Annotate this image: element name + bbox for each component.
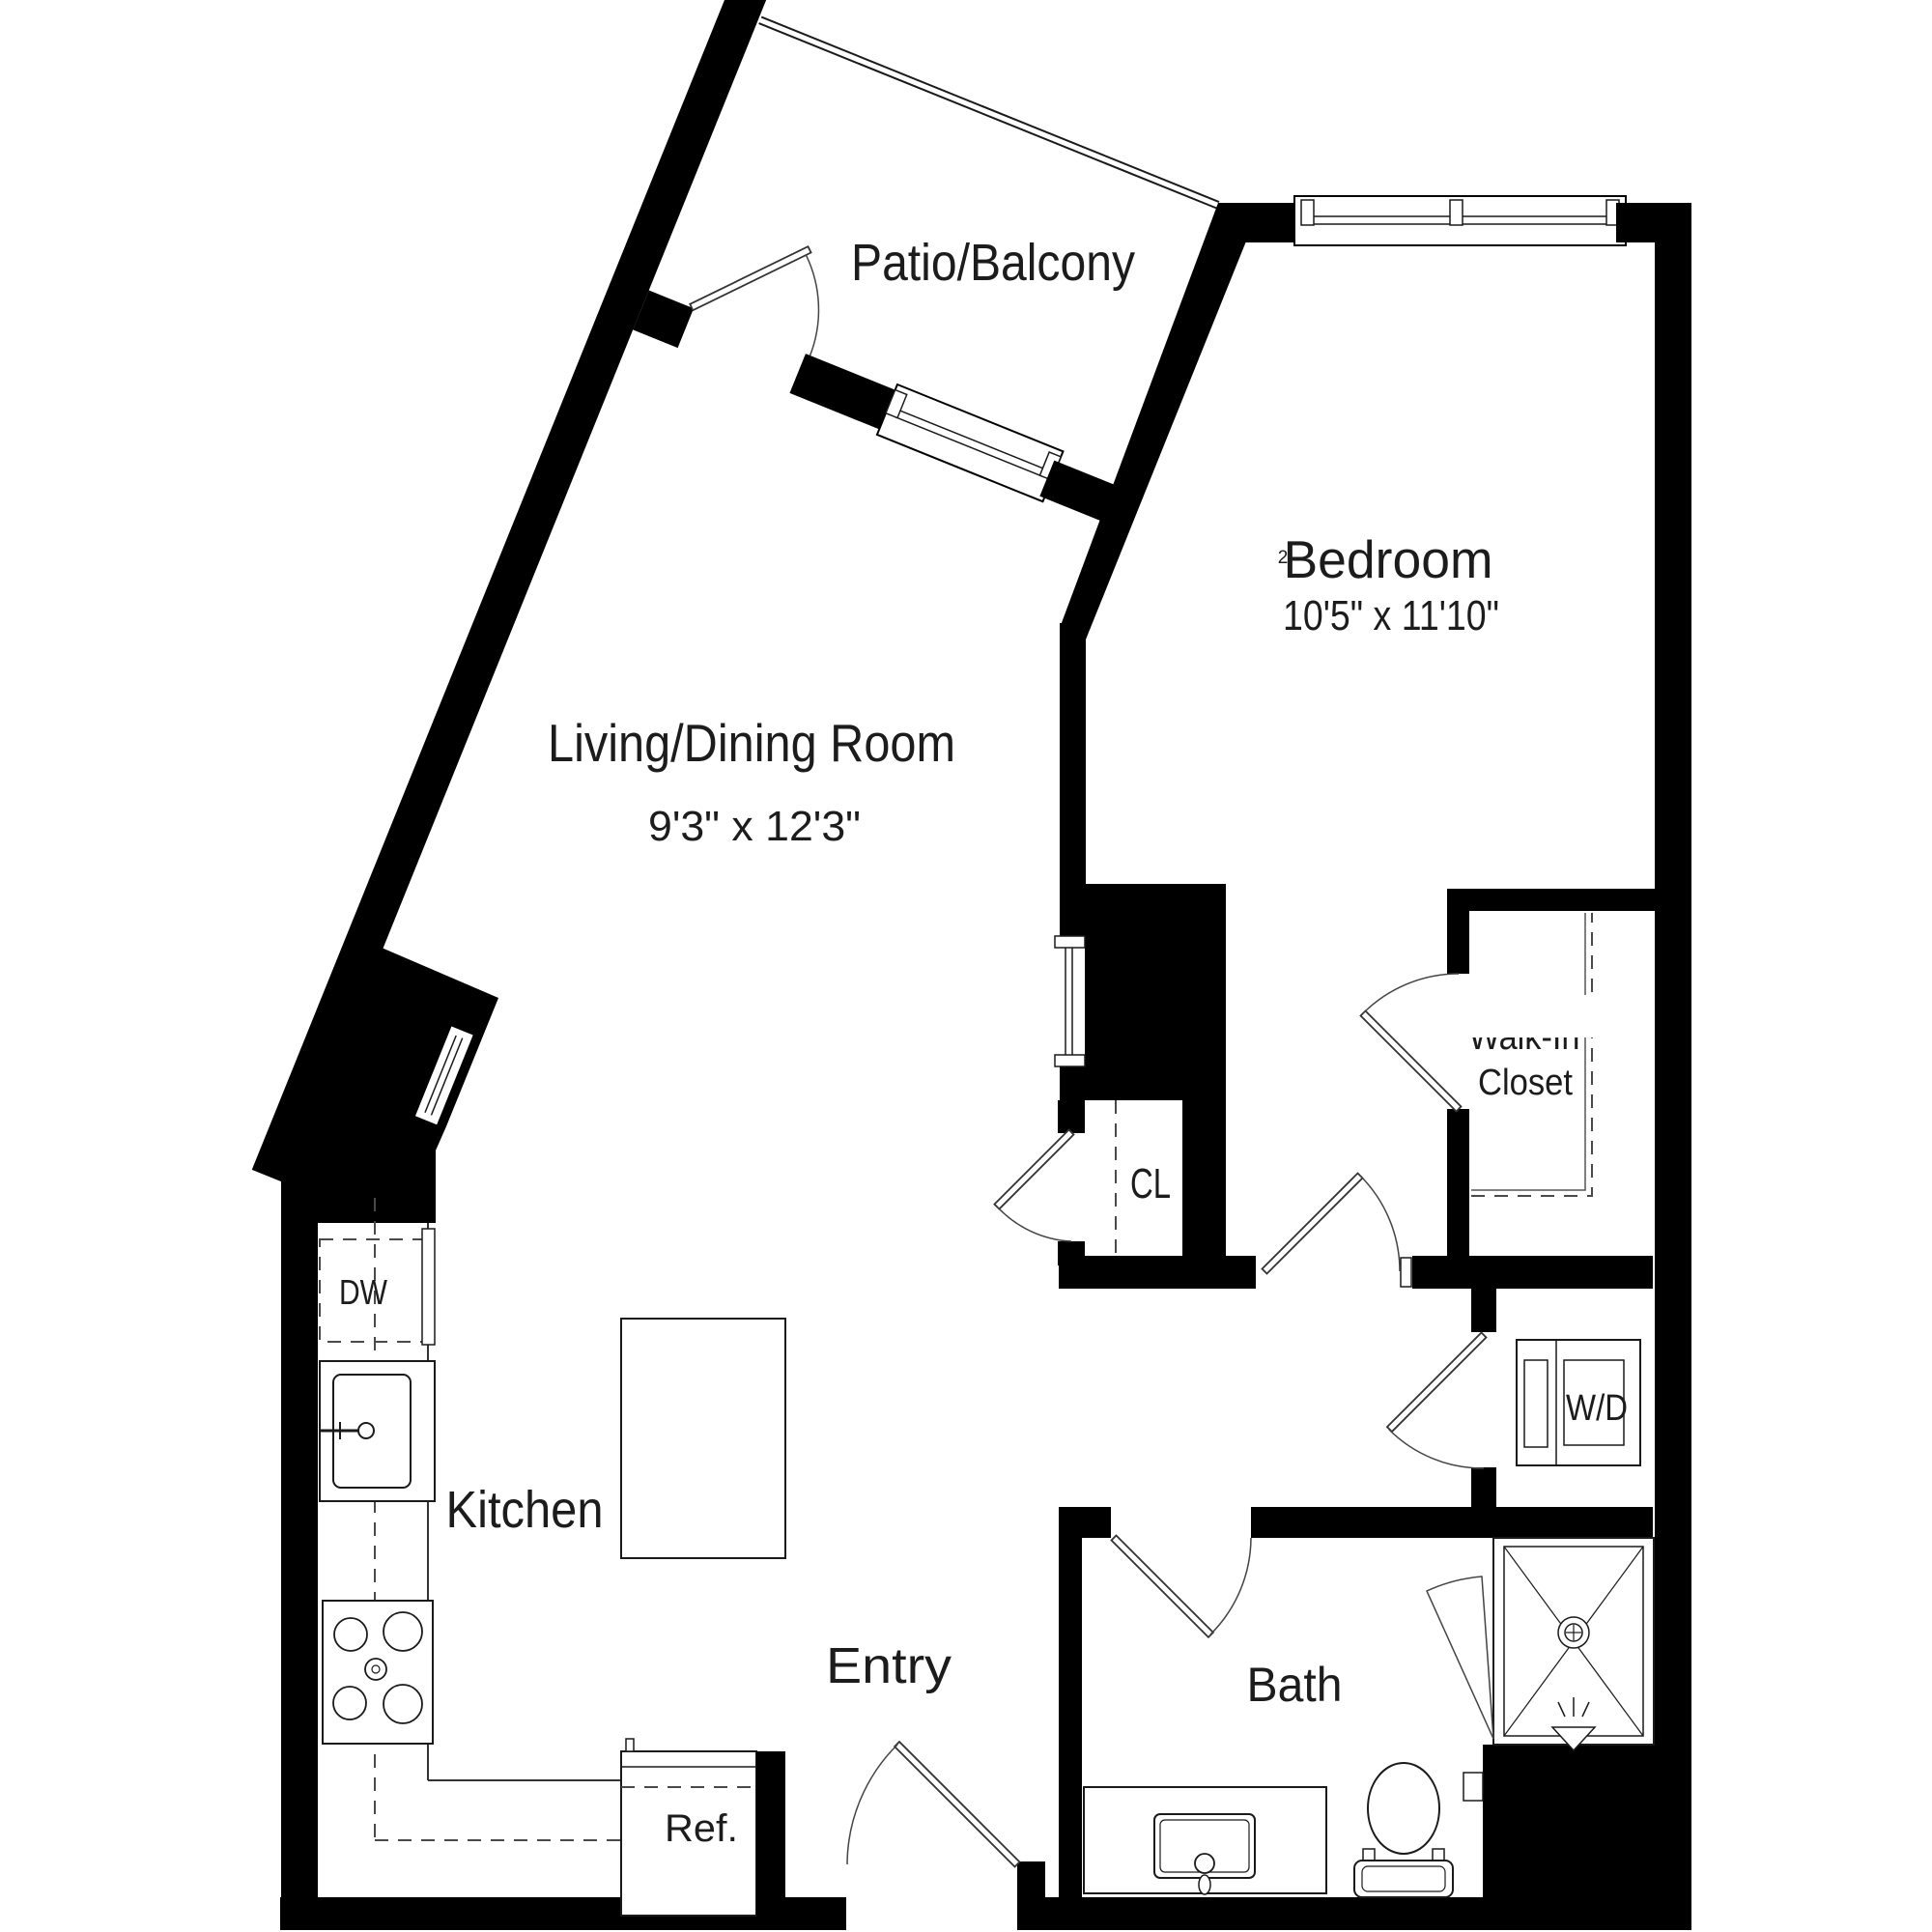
svg-text:10'5" x 11'10": 10'5" x 11'10" [1283, 592, 1499, 639]
svg-text:CL: CL [1130, 1160, 1171, 1207]
svg-text:Bath: Bath [1247, 1658, 1343, 1712]
svg-text:W/D: W/D [1566, 1388, 1628, 1429]
svg-text:Living/Dining Room: Living/Dining Room [548, 713, 955, 773]
svg-text:2: 2 [1278, 548, 1289, 568]
svg-text:9'3" x 12'3": 9'3" x 12'3" [648, 803, 861, 850]
svg-text:Closet: Closet [1478, 1063, 1573, 1103]
svg-text:Entry: Entry [826, 1638, 952, 1694]
svg-text:Ref.: Ref. [665, 1807, 738, 1850]
svg-text:Bedroom: Bedroom [1284, 529, 1493, 589]
svg-text:Kitchen: Kitchen [446, 1481, 604, 1539]
svg-text:Patio/Balcony: Patio/Balcony [851, 234, 1135, 292]
svg-text:DW: DW [339, 1272, 387, 1312]
